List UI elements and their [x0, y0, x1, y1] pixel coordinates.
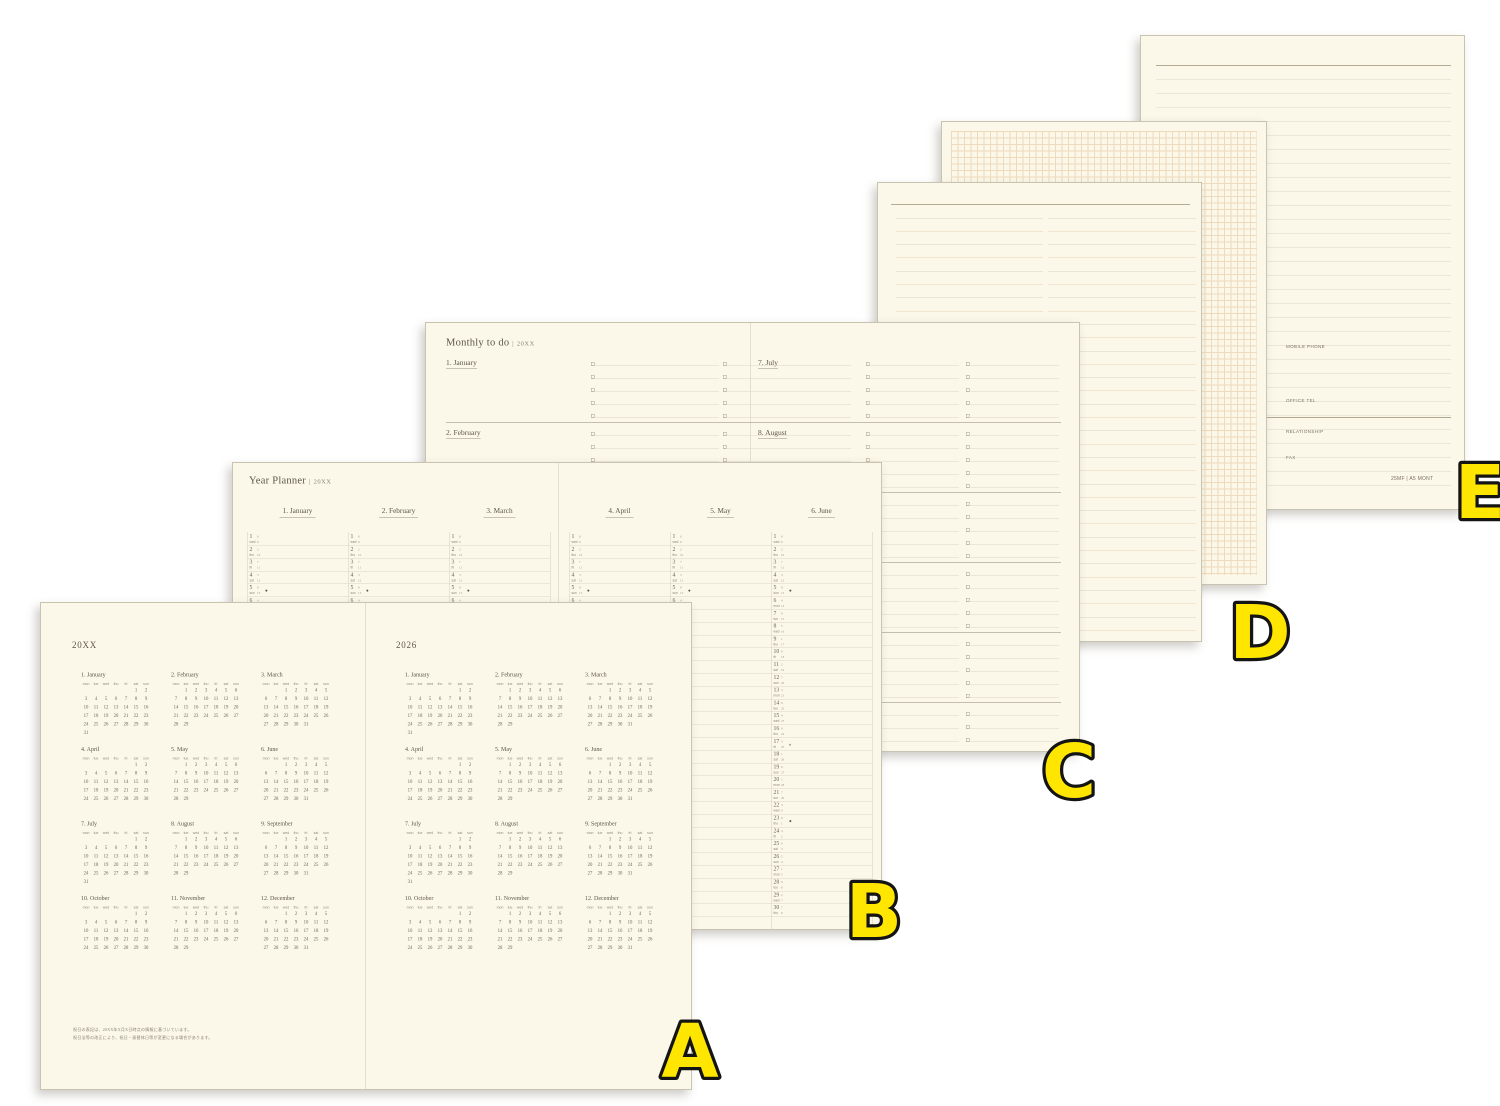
spread-a-yearly-calendars: 20XX 1. Januarymontuewedthufrisatsun1234… [40, 602, 692, 1090]
week-row: 31 [81, 729, 152, 738]
day-cell: 24 [301, 787, 311, 796]
day-cell: 11 [311, 844, 321, 853]
day-cell: 21 [271, 712, 281, 721]
day-cell: 8 [455, 695, 465, 704]
week-row: 13141516171819 [585, 853, 656, 862]
week-row: 10111213141516 [81, 778, 152, 787]
day-cell: 28 [171, 795, 181, 804]
day-cell: 26 [101, 944, 111, 953]
day-cell: 12 [221, 695, 231, 704]
week-row: 14151617181920 [495, 704, 566, 713]
day-cell: 2 [141, 761, 151, 770]
day-cell [495, 836, 505, 845]
day-cell: 10 [625, 695, 635, 704]
day-cell: 30 [141, 870, 151, 879]
day-cell: 28 [121, 870, 131, 879]
day-cell: 14 [495, 778, 505, 787]
day-cell: 28 [595, 944, 605, 953]
month-label: 10. October [405, 895, 476, 903]
calendar-mark: 2 [579, 548, 581, 552]
checkbox [966, 642, 970, 646]
day-cell: 27 [111, 721, 121, 730]
day-cell: 16 [615, 853, 625, 862]
day-cell: 22 [455, 936, 465, 945]
day-cell: 4 [311, 761, 321, 770]
calendar-mark: 2 [781, 663, 783, 667]
mini-month-calendar: 10. Octobermontuewedthufrisatsun12345678… [81, 895, 152, 970]
day-cell: 16 [191, 778, 201, 787]
week-row: 20212223242526 [585, 712, 656, 721]
weekday-label: wed [774, 630, 780, 634]
day-cell: 5 [101, 770, 111, 779]
day-cell: 19 [101, 861, 111, 870]
day-cell: 17 [625, 927, 635, 936]
day-number: 4 [774, 572, 777, 578]
day-row: 22thu10 [348, 546, 449, 559]
calendar-mark: 7 [781, 676, 783, 680]
moon-age: 9 [358, 541, 360, 545]
page-title: Monthly to do | 20XX [446, 336, 535, 349]
month-label: 4. April [81, 746, 152, 754]
day-number: 14 [774, 700, 780, 706]
day-cell [111, 729, 121, 738]
day-cell: 18 [211, 778, 221, 787]
todo-line [866, 362, 959, 366]
calendar-mark: 5 [781, 855, 783, 859]
day-cell [271, 761, 281, 770]
day-cell: 3 [201, 836, 211, 845]
day-cell [595, 910, 605, 919]
day-row: 37fri11 [247, 559, 348, 572]
day-row: 16wed9 [670, 533, 771, 546]
day-number: 25 [774, 841, 780, 847]
day-cell: 5 [645, 761, 655, 770]
calendar-mark: 2 [459, 548, 461, 552]
day-cell [311, 870, 321, 879]
day-cell: 20 [261, 861, 271, 870]
day-cell: 5 [425, 844, 435, 853]
calendar-mark: 2 [680, 548, 682, 552]
weekday-label: thu [774, 912, 779, 916]
day-cell: 26 [321, 861, 331, 870]
day-cell: 31 [625, 721, 635, 730]
calendar-mark: 7 [358, 561, 360, 565]
week-row: 24252627282930 [81, 795, 152, 804]
day-cell: 2 [191, 910, 201, 919]
day-cell: 3 [201, 687, 211, 696]
checkbox [866, 414, 870, 418]
day-cell: 18 [635, 704, 645, 713]
week-row: 3456789 [405, 844, 476, 853]
moon-age: 12 [257, 579, 260, 583]
day-cell [231, 721, 241, 730]
day-cell: 7 [121, 844, 131, 853]
day-cell: 26 [321, 936, 331, 945]
week-row: 78910111213 [495, 695, 566, 704]
day-cell: 11 [91, 853, 101, 862]
day-cell: 30 [615, 721, 625, 730]
day-cell: 14 [121, 778, 131, 787]
week-row: 10111213141516 [405, 704, 476, 713]
week-row: 14151617181920 [495, 927, 566, 936]
moon-age: 9 [680, 541, 682, 545]
day-cell [445, 878, 455, 887]
day-cell: 12 [425, 853, 435, 862]
day-cell [91, 761, 101, 770]
mini-month-calendar: 5. Maymontuewedthufrisatsun1234567891011… [495, 746, 566, 821]
mini-month-calendar: 4. Aprilmontuewedthufrisatsun12345678910… [81, 746, 152, 821]
week-row: 3456789 [405, 919, 476, 928]
day-cell: 9 [515, 695, 525, 704]
day-cell: 13 [111, 927, 121, 936]
day-cell: 12 [545, 770, 555, 779]
day-cell: 4 [211, 687, 221, 696]
day-cell [585, 761, 595, 770]
day-cell: 8 [131, 770, 141, 779]
day-cell: 31 [301, 870, 311, 879]
day-row: 85wed16 [771, 623, 872, 636]
day-cell: 26 [101, 795, 111, 804]
weekday-label: fri [774, 656, 777, 660]
day-cell: 7 [495, 695, 505, 704]
day-cell: 18 [91, 936, 101, 945]
day-row: 265sun4 [771, 853, 872, 866]
title-year: 20XX [314, 478, 332, 486]
day-cell: 30 [291, 721, 301, 730]
checkbox [966, 375, 970, 379]
day-cell: 23 [291, 712, 301, 721]
day-cell: 1 [181, 910, 191, 919]
day-cell: 21 [171, 861, 181, 870]
checkbox [966, 694, 970, 698]
day-cell [415, 836, 425, 845]
weekday-label: fri [572, 566, 575, 570]
moon-phase-icon: ● [789, 588, 792, 593]
day-cell: 16 [465, 704, 475, 713]
day-cell [171, 687, 181, 696]
day-cell: 18 [311, 853, 321, 862]
week-row: 78910111213 [171, 844, 242, 853]
calendar-mark: 6 [680, 535, 682, 539]
day-cell: 9 [291, 695, 301, 704]
day-cell: 29 [505, 721, 515, 730]
checkbox [966, 401, 970, 405]
week-row: 3456789 [81, 844, 152, 853]
day-cell [635, 870, 645, 879]
day-cell: 15 [505, 853, 515, 862]
day-cell [261, 687, 271, 696]
day-cell: 7 [271, 770, 281, 779]
day-cell: 13 [555, 695, 565, 704]
day-cell: 9 [515, 919, 525, 928]
day-cell [555, 944, 565, 953]
day-cell: 18 [91, 861, 101, 870]
todo-line [966, 528, 1059, 532]
day-cell [201, 944, 211, 953]
day-cell: 10 [405, 927, 415, 936]
day-row: 43sat12 [771, 571, 872, 584]
moon-age: 8 [781, 912, 783, 916]
week-row: 20212223242526 [261, 787, 332, 796]
day-cell: 17 [405, 712, 415, 721]
weekday-label: fri [452, 566, 455, 570]
moon-age: 10 [680, 553, 683, 557]
day-row: 244fri2 [771, 827, 872, 840]
moon-age: 2 [781, 835, 783, 839]
day-cell: 23 [141, 936, 151, 945]
day-cell [131, 878, 141, 887]
day-cell: 9 [141, 770, 151, 779]
day-cell: 24 [625, 787, 635, 796]
day-number: 2 [351, 547, 354, 553]
todo-line [966, 572, 1059, 576]
todo-line [866, 401, 959, 405]
day-cell: 4 [635, 687, 645, 696]
day-cell: 11 [311, 770, 321, 779]
weekday-label: fri [774, 835, 777, 839]
day-cell: 21 [171, 712, 181, 721]
day-number: 18 [774, 752, 780, 758]
todo-line [966, 694, 1059, 698]
calendar-mark: 6 [257, 535, 259, 539]
day-number: 19 [774, 764, 780, 770]
day-cell: 25 [535, 712, 545, 721]
day-cell: 15 [605, 778, 615, 787]
label-d-letter: D [1229, 590, 1290, 676]
weekday-label: sun [673, 592, 678, 596]
day-cell: 27 [261, 721, 271, 730]
day-cell: 20 [435, 861, 445, 870]
week-row: 6789101112 [261, 770, 332, 779]
todo-line [966, 681, 1059, 685]
month-label: 6. June [585, 746, 656, 754]
day-cell: 27 [231, 712, 241, 721]
day-cell: 7 [445, 695, 455, 704]
day-row: 22thu10 [670, 546, 771, 559]
week-row: 13141516171819 [585, 704, 656, 713]
day-cell: 6 [555, 836, 565, 845]
day-cell: 6 [231, 836, 241, 845]
day-cell: 20 [261, 712, 271, 721]
day-cell: 26 [101, 721, 111, 730]
weekday-label: thu [250, 553, 255, 557]
day-cell: 12 [221, 770, 231, 779]
day-cell: 8 [505, 695, 515, 704]
day-cell: 13 [111, 704, 121, 713]
day-row: 133mon21 [771, 687, 872, 700]
day-cell: 7 [121, 919, 131, 928]
day-cell: 25 [415, 870, 425, 879]
day-row: 106fri18 [771, 648, 872, 661]
week-row: 14151617181920 [171, 927, 242, 936]
day-cell: 17 [525, 853, 535, 862]
week-row: 12 [405, 761, 476, 770]
day-cell: 3 [525, 761, 535, 770]
day-cell [535, 944, 545, 953]
day-cell [101, 836, 111, 845]
week-row: 20212223242526 [585, 936, 656, 945]
day-cell: 5 [425, 695, 435, 704]
mini-month-calendar: 2. Februarymontuewedthufrisatsun12345678… [495, 671, 566, 746]
day-cell: 27 [435, 721, 445, 730]
week-row: 12 [81, 910, 152, 919]
day-cell: 1 [131, 836, 141, 845]
todo-line [966, 585, 1059, 589]
label-e-letter: E [1455, 450, 1500, 536]
day-cell: 25 [635, 936, 645, 945]
moon-age: 19 [781, 668, 784, 672]
year-title-left: 20XX [72, 640, 97, 651]
day-cell: 5 [221, 836, 231, 845]
day-cell: 8 [455, 844, 465, 853]
day-cell: 10 [525, 844, 535, 853]
week-row: 12 [81, 836, 152, 845]
day-cell: 10 [81, 927, 91, 936]
day-cell: 9 [291, 844, 301, 853]
calendar-mark: 2 [781, 893, 783, 897]
day-cell: 31 [405, 729, 415, 738]
todo-line [966, 515, 1059, 519]
day-cell [405, 910, 415, 919]
day-cell: 2 [191, 761, 201, 770]
day-cell: 25 [91, 795, 101, 804]
day-number: 4 [452, 572, 455, 578]
day-cell: 7 [121, 695, 131, 704]
day-cell: 23 [291, 861, 301, 870]
day-cell: 5 [221, 761, 231, 770]
day-cell [121, 729, 131, 738]
day-number: 1 [572, 534, 575, 540]
day-cell: 29 [281, 944, 291, 953]
day-row: 37fri11 [569, 559, 670, 572]
day-cell: 8 [181, 770, 191, 779]
day-cell: 8 [181, 695, 191, 704]
checkbox [966, 624, 970, 628]
day-cell: 9 [465, 919, 475, 928]
calendar-mark: 1 [781, 753, 783, 757]
day-row: 16wed9 [569, 533, 670, 546]
mini-month-calendar: 8. Augustmontuewedthufrisatsun1234567891… [171, 820, 242, 895]
day-cell: 14 [171, 853, 181, 862]
day-cell [231, 870, 241, 879]
day-cell: 24 [405, 870, 415, 879]
day-cell: 16 [465, 778, 475, 787]
day-cell: 7 [595, 919, 605, 928]
week-row: 123456 [171, 910, 242, 919]
day-cell: 16 [141, 778, 151, 787]
day-cell: 26 [545, 712, 555, 721]
day-cell: 21 [121, 712, 131, 721]
day-cell: 14 [171, 778, 181, 787]
field-label-office-tel: OFFICE TEL [1286, 398, 1316, 403]
day-cell: 13 [261, 704, 271, 713]
day-cell: 26 [321, 787, 331, 796]
day-cell: 24 [201, 787, 211, 796]
checkbox [966, 738, 970, 742]
day-cell [121, 687, 131, 696]
month-label: 1. January [405, 671, 476, 679]
day-cell: 12 [425, 927, 435, 936]
day-cell: 6 [585, 919, 595, 928]
day-cell: 29 [181, 944, 191, 953]
day-cell: 20 [231, 853, 241, 862]
moon-age: 11 [579, 566, 582, 570]
mini-month-calendar: 1. Januarymontuewedthufrisatsun123456789… [405, 671, 476, 746]
month-label: 1. January [81, 671, 152, 679]
week-row: 21222324252627 [171, 936, 242, 945]
week-row: 3456789 [405, 695, 476, 704]
moon-age: 13 [358, 592, 361, 596]
month-label: 2. February [171, 671, 242, 679]
mini-month-calendar: 7. Julymontuewedthufrisatsun123456789101… [81, 820, 152, 895]
day-cell: 22 [605, 787, 615, 796]
day-cell: 19 [101, 712, 111, 721]
day-cell: 17 [625, 778, 635, 787]
weekday-label: wed [673, 541, 679, 545]
day-cell [405, 687, 415, 696]
day-cell: 11 [535, 770, 545, 779]
day-cell: 25 [635, 787, 645, 796]
day-cell [545, 721, 555, 730]
day-cell [311, 944, 321, 953]
day-cell: 23 [191, 712, 201, 721]
day-cell: 27 [261, 795, 271, 804]
day-number: 3 [673, 560, 676, 566]
day-cell: 28 [271, 944, 281, 953]
day-cell: 18 [415, 861, 425, 870]
week-row: 13141516171819 [585, 778, 656, 787]
day-cell: 20 [555, 927, 565, 936]
moon-age: 11 [257, 566, 260, 570]
calendar-mark: 3 [257, 573, 259, 577]
day-cell: 24 [81, 795, 91, 804]
day-cell: 8 [131, 919, 141, 928]
todo-line [966, 445, 1059, 449]
week-row: 6789101112 [585, 844, 656, 853]
day-number: 27 [774, 867, 780, 873]
day-number: 17 [774, 739, 780, 745]
day-cell [211, 795, 221, 804]
day-cell: 12 [645, 770, 655, 779]
moon-age: 4 [781, 860, 783, 864]
day-cell: 21 [595, 861, 605, 870]
day-number: 16 [774, 726, 780, 732]
holiday-footnote-2: 祝日法等の改正により、祝日・振替休日等が変更になる場合があります。 [73, 1034, 213, 1042]
moon-age: 14 [781, 604, 784, 608]
day-cell: 16 [191, 927, 201, 936]
day-cell: 8 [181, 844, 191, 853]
calendar-mark: 8 [781, 586, 783, 590]
day-cell: 20 [585, 936, 595, 945]
day-cell: 15 [505, 927, 515, 936]
week-row: 3456789 [81, 770, 152, 779]
day-cell: 5 [321, 761, 331, 770]
day-cell: 29 [605, 721, 615, 730]
day-cell: 14 [271, 927, 281, 936]
weekday-label: thu [452, 553, 457, 557]
day-cell: 21 [445, 861, 455, 870]
day-cell [271, 687, 281, 696]
week-row: 14151617181920 [495, 853, 566, 862]
day-cell: 20 [555, 778, 565, 787]
todo-line [966, 484, 1059, 488]
day-cell: 17 [405, 861, 415, 870]
week-row: 31 [405, 729, 476, 738]
day-cell: 3 [81, 770, 91, 779]
day-cell: 5 [425, 770, 435, 779]
day-cell: 13 [231, 695, 241, 704]
moon-age: 24 [781, 732, 784, 736]
